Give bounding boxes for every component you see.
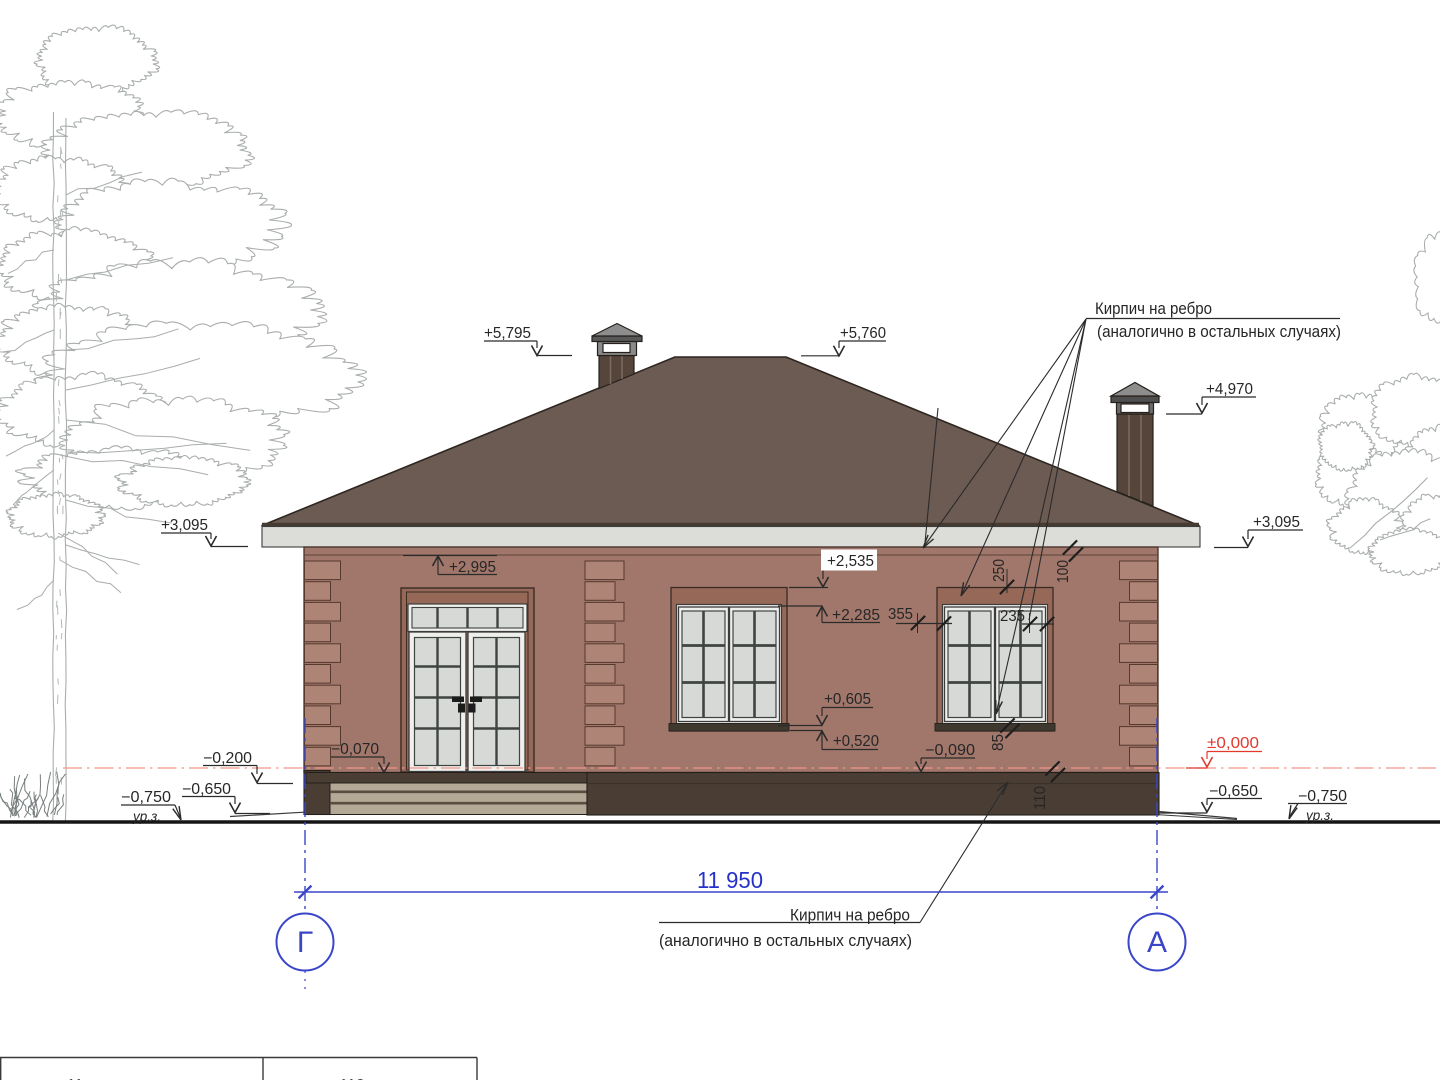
svg-text:−0,750: −0,750	[121, 789, 171, 806]
svg-text:±0,000: ±0,000	[1207, 735, 1259, 752]
svg-text:Кирпич на ребро: Кирпич на ребро	[790, 907, 910, 925]
svg-text:Кирпич на ребро: Кирпич на ребро	[1095, 300, 1212, 318]
svg-text:100: 100	[1055, 560, 1072, 583]
svg-text:−0,750: −0,750	[1298, 788, 1347, 805]
svg-text:ур.з.: ур.з.	[132, 809, 161, 824]
svg-text:(аналогично в остальных случая: (аналогично в остальных случаях)	[659, 932, 912, 950]
svg-text:+5,795: +5,795	[484, 325, 531, 342]
svg-text:+0,605: +0,605	[824, 691, 871, 708]
svg-text:ур.з.: ур.з.	[1305, 808, 1334, 823]
svg-text:−0,200: −0,200	[203, 750, 252, 767]
svg-text:+3,095: +3,095	[1253, 514, 1300, 531]
svg-text:85: 85	[990, 734, 1007, 751]
svg-text:+5,760: +5,760	[840, 325, 886, 342]
svg-text:+4,970: +4,970	[1206, 381, 1253, 398]
svg-text:−0,070: −0,070	[331, 741, 379, 758]
svg-text:−0,090: −0,090	[925, 742, 975, 759]
svg-text:+2,995: +2,995	[449, 559, 496, 576]
svg-text:110: 110	[1032, 786, 1049, 810]
svg-text:+3,095: +3,095	[161, 517, 208, 534]
svg-text:Г: Г	[297, 926, 313, 959]
svg-text:235: 235	[1000, 608, 1025, 625]
svg-text:250: 250	[991, 559, 1008, 582]
svg-text:+0,520: +0,520	[833, 733, 879, 750]
svg-text:355: 355	[888, 606, 913, 623]
svg-text:+2,285: +2,285	[832, 607, 880, 624]
svg-text:11 950: 11 950	[697, 867, 763, 893]
svg-text:−0,650: −0,650	[182, 781, 231, 798]
svg-text:−0,650: −0,650	[1209, 783, 1258, 800]
svg-text:+2,535: +2,535	[827, 553, 874, 570]
svg-text:(аналогично в остальных случая: (аналогично в остальных случаях)	[1097, 323, 1341, 341]
svg-text:А: А	[1147, 926, 1167, 959]
